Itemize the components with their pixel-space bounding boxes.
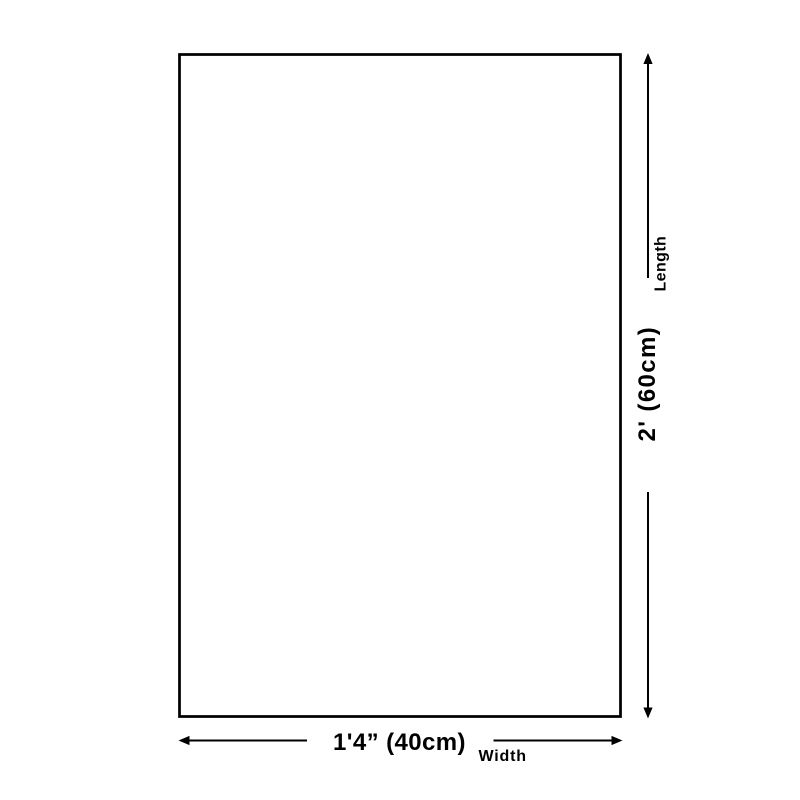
svg-text:1'4” (40cm): 1'4” (40cm) (333, 729, 466, 756)
svg-text:2' (60cm): 2' (60cm) (634, 326, 661, 442)
svg-text:Length: Length (653, 236, 670, 292)
svg-text:Width: Width (479, 748, 527, 765)
